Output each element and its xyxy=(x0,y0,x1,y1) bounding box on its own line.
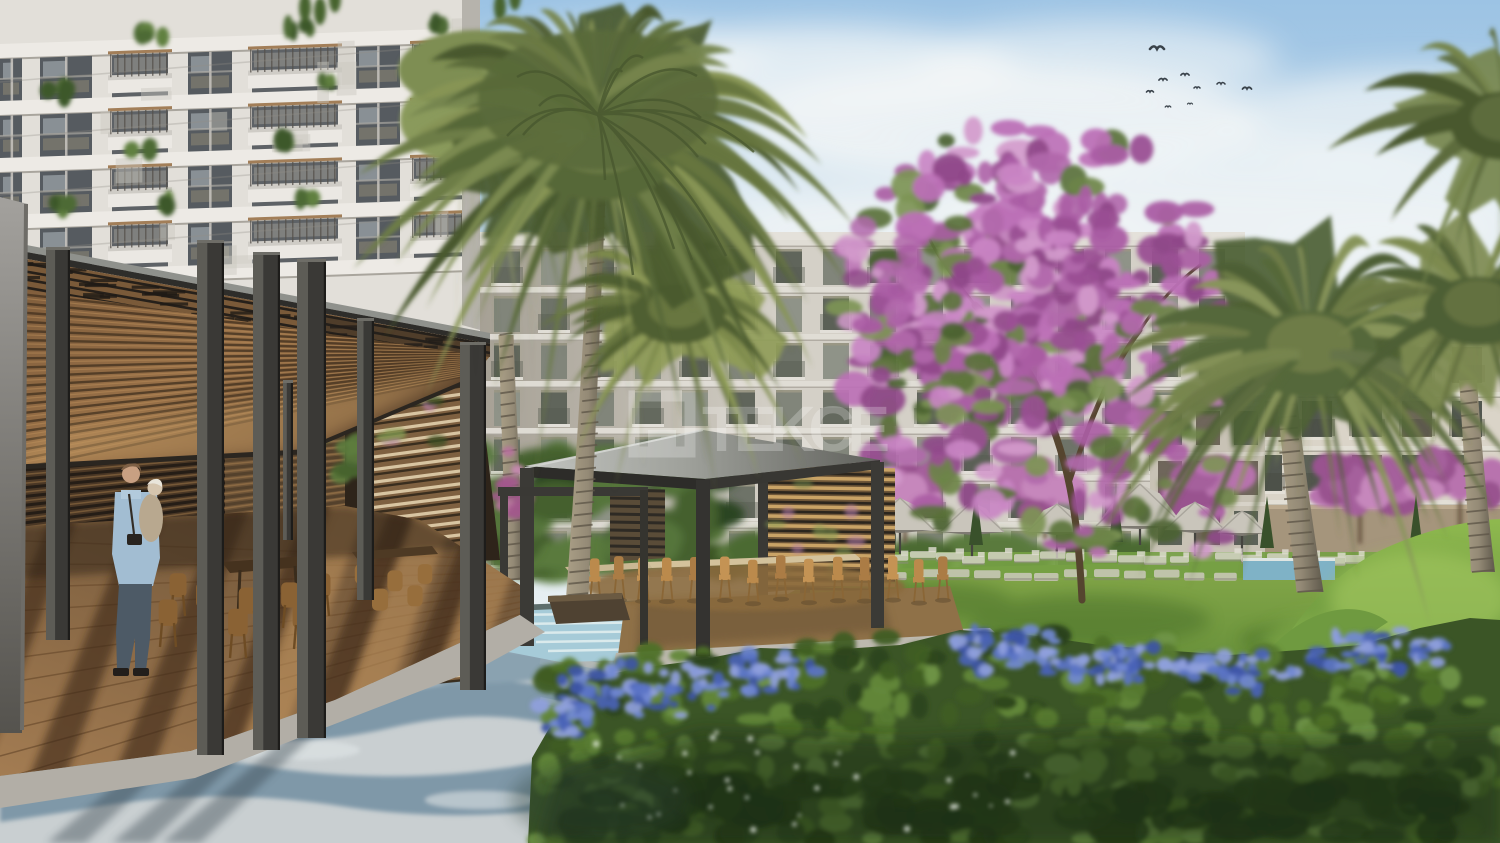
svg-text:TEKCE: TEKCE xyxy=(702,393,894,465)
